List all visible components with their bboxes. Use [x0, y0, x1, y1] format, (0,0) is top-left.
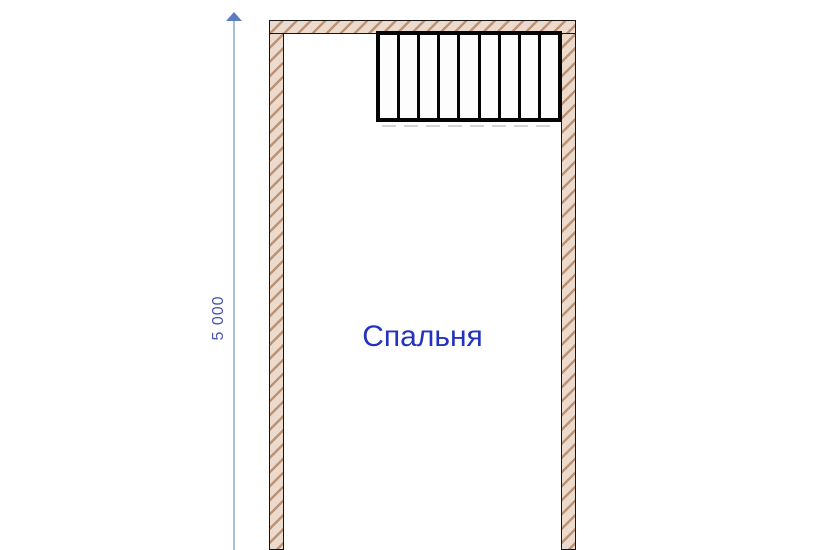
staircase-shadow — [382, 125, 558, 127]
wall-left[interactable] — [269, 20, 284, 550]
stair-tread — [501, 35, 521, 118]
stair-tread — [521, 35, 541, 118]
floor-plan-view: 5 000 Спальня — [0, 0, 825, 550]
dimension-label[interactable]: 5 000 — [210, 295, 228, 340]
wall-right[interactable] — [561, 20, 576, 550]
stair-tread — [400, 35, 420, 118]
stair-tread — [481, 35, 501, 118]
stair-tread — [380, 35, 400, 118]
stair-tread — [460, 35, 480, 118]
stair-tread — [420, 35, 440, 118]
staircase[interactable] — [376, 31, 562, 122]
stair-tread — [440, 35, 460, 118]
dimension-line[interactable] — [233, 13, 235, 550]
stair-tread — [541, 35, 558, 118]
dimension-arrow-up-icon — [226, 12, 242, 21]
room-label[interactable]: Спальня — [284, 320, 561, 354]
